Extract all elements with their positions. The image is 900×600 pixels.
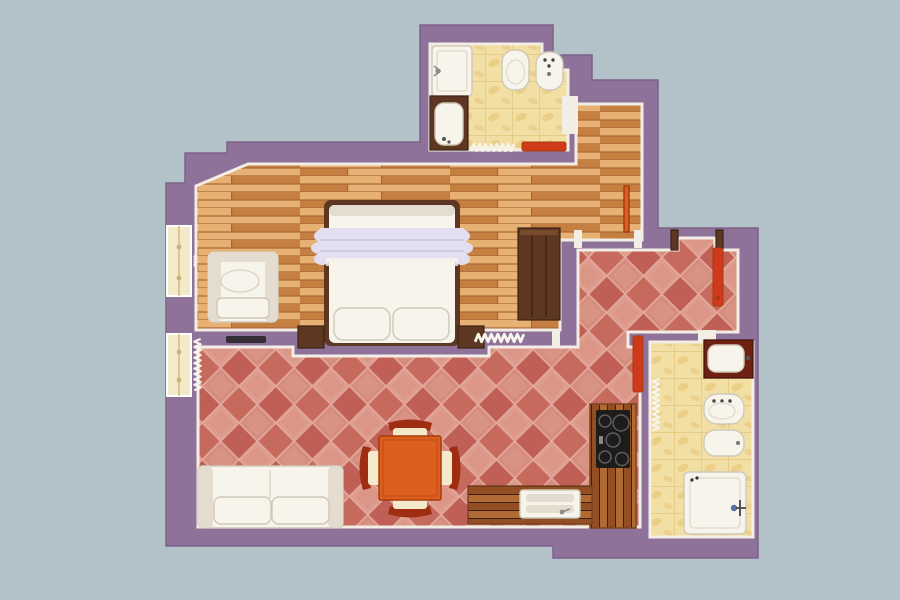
kitchen-sink (520, 490, 580, 518)
toilet (704, 394, 744, 424)
armchair-back (208, 252, 278, 262)
living-room-window (167, 334, 191, 396)
sink-vanity (430, 96, 468, 150)
sofa-cushion-left (214, 497, 271, 524)
bathroom-door-open (633, 336, 643, 392)
headboard (329, 205, 455, 216)
bedroom-window (167, 226, 191, 296)
living-room-door-frame (552, 330, 560, 347)
entry-door-open (713, 248, 723, 306)
pillow-right (393, 308, 449, 340)
entry-door-frame-right (716, 230, 723, 250)
bidet (704, 430, 744, 456)
wardrobe (518, 228, 560, 320)
toilet (502, 50, 529, 90)
cooktop (596, 410, 630, 468)
bathroom-top-doorway (562, 96, 578, 134)
sink-vanity (704, 340, 753, 378)
floor-plan-rendering (0, 0, 900, 600)
sofa-armrest-left (198, 466, 213, 528)
corridor-door-frame-right (634, 230, 642, 248)
dining-chair-left (360, 446, 382, 490)
double-bed (311, 200, 473, 346)
nightstand-left (298, 326, 324, 348)
armchair (208, 252, 278, 322)
floor-plan-canvas (0, 0, 900, 600)
duvet-fold (311, 228, 473, 266)
armchair-cushion (221, 270, 259, 292)
dining-table (379, 436, 441, 500)
cooktop-controls (599, 436, 603, 444)
sink-faucet-icon (746, 356, 750, 360)
corridor-door-leaf (624, 186, 629, 232)
armchair-seat (217, 298, 269, 318)
shower-tray (432, 46, 472, 96)
corridor-door-frame-left (574, 230, 582, 248)
bath-mat (522, 142, 566, 151)
tv-shelf (226, 336, 266, 343)
sofa-cushion-right (272, 497, 329, 524)
entry-door-frame-left (671, 230, 678, 250)
bidet (536, 52, 563, 90)
sofa (198, 466, 343, 528)
sink-faucet-icon (442, 137, 446, 141)
pillow-left (334, 308, 390, 340)
shower-tray (684, 472, 746, 534)
dining-chair-right (439, 446, 461, 490)
sofa-armrest-right (328, 466, 343, 528)
